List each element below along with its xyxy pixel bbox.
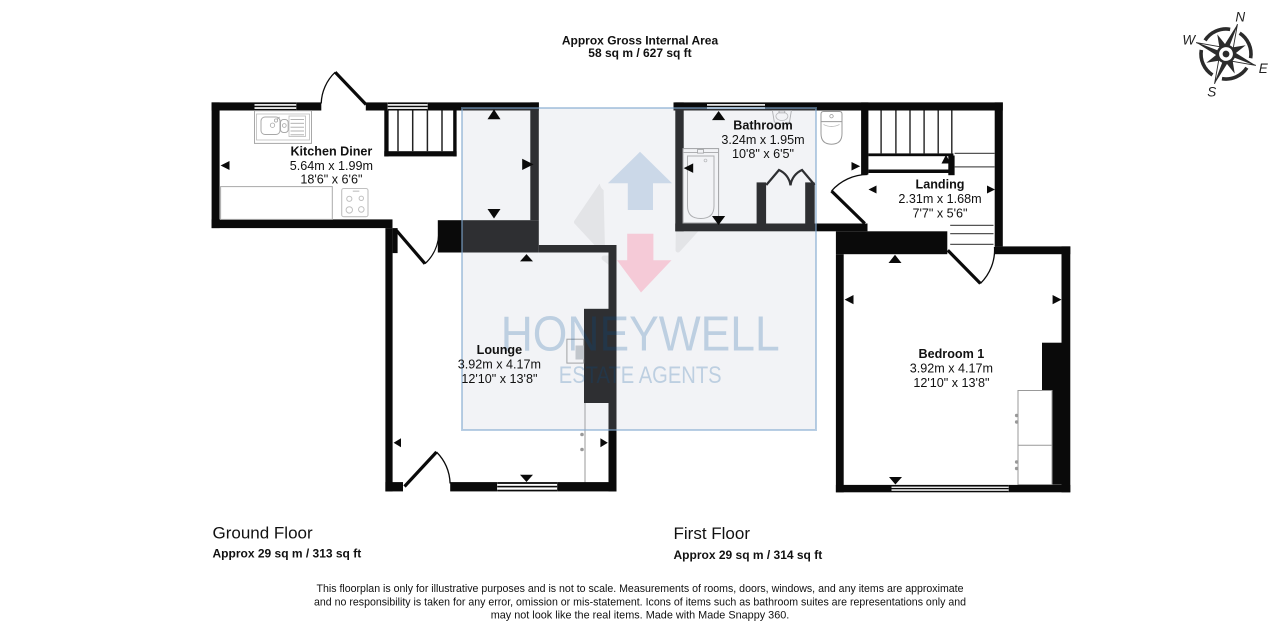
- svg-text:Bedroom 1: Bedroom 1: [919, 347, 985, 361]
- svg-text:may not look like the real ite: may not look like the real items. Made w…: [491, 610, 790, 622]
- svg-text:12'10" x 13'8": 12'10" x 13'8": [461, 372, 537, 386]
- svg-text:S: S: [1207, 85, 1216, 100]
- svg-text:58 sq m / 627 sq ft: 58 sq m / 627 sq ft: [588, 46, 691, 60]
- svg-text:E: E: [1259, 61, 1269, 76]
- svg-text:Ground Floor: Ground Floor: [213, 523, 313, 542]
- svg-text:5.64m x 1.99m: 5.64m x 1.99m: [290, 159, 373, 173]
- svg-text:W: W: [1182, 33, 1196, 48]
- svg-text:Kitchen Diner: Kitchen Diner: [290, 145, 372, 159]
- svg-text:ESTATE AGENTS: ESTATE AGENTS: [559, 361, 722, 388]
- svg-text:3.24m x 1.95m: 3.24m x 1.95m: [721, 133, 804, 147]
- svg-text:Bathroom: Bathroom: [733, 119, 792, 133]
- svg-text:12'10" x 13'8": 12'10" x 13'8": [913, 376, 989, 390]
- svg-text:HONEYWELL: HONEYWELL: [501, 307, 780, 362]
- svg-text:18'6" x 6'6": 18'6" x 6'6": [300, 172, 362, 186]
- svg-text:7'7" x 5'6": 7'7" x 5'6": [912, 207, 967, 221]
- svg-text:3.92m x 4.17m: 3.92m x 4.17m: [910, 362, 993, 376]
- svg-text:First Floor: First Floor: [674, 524, 751, 543]
- svg-text:3.92m x 4.17m: 3.92m x 4.17m: [458, 358, 541, 372]
- svg-text:2.31m x 1.68m: 2.31m x 1.68m: [898, 192, 981, 206]
- svg-text:and no responsibility is taken: and no responsibility is taken for any e…: [314, 596, 966, 608]
- svg-text:Approx 29 sq m / 313 sq ft: Approx 29 sq m / 313 sq ft: [213, 547, 362, 561]
- svg-text:10'8" x 6'5": 10'8" x 6'5": [732, 147, 794, 161]
- svg-text:N: N: [1235, 10, 1245, 25]
- svg-text:Lounge: Lounge: [477, 343, 522, 357]
- svg-text:This floorplan is only for ill: This floorplan is only for illustrative …: [317, 583, 964, 595]
- svg-text:Approx 29 sq m / 314 sq ft: Approx 29 sq m / 314 sq ft: [674, 548, 823, 562]
- svg-text:Landing: Landing: [916, 178, 965, 192]
